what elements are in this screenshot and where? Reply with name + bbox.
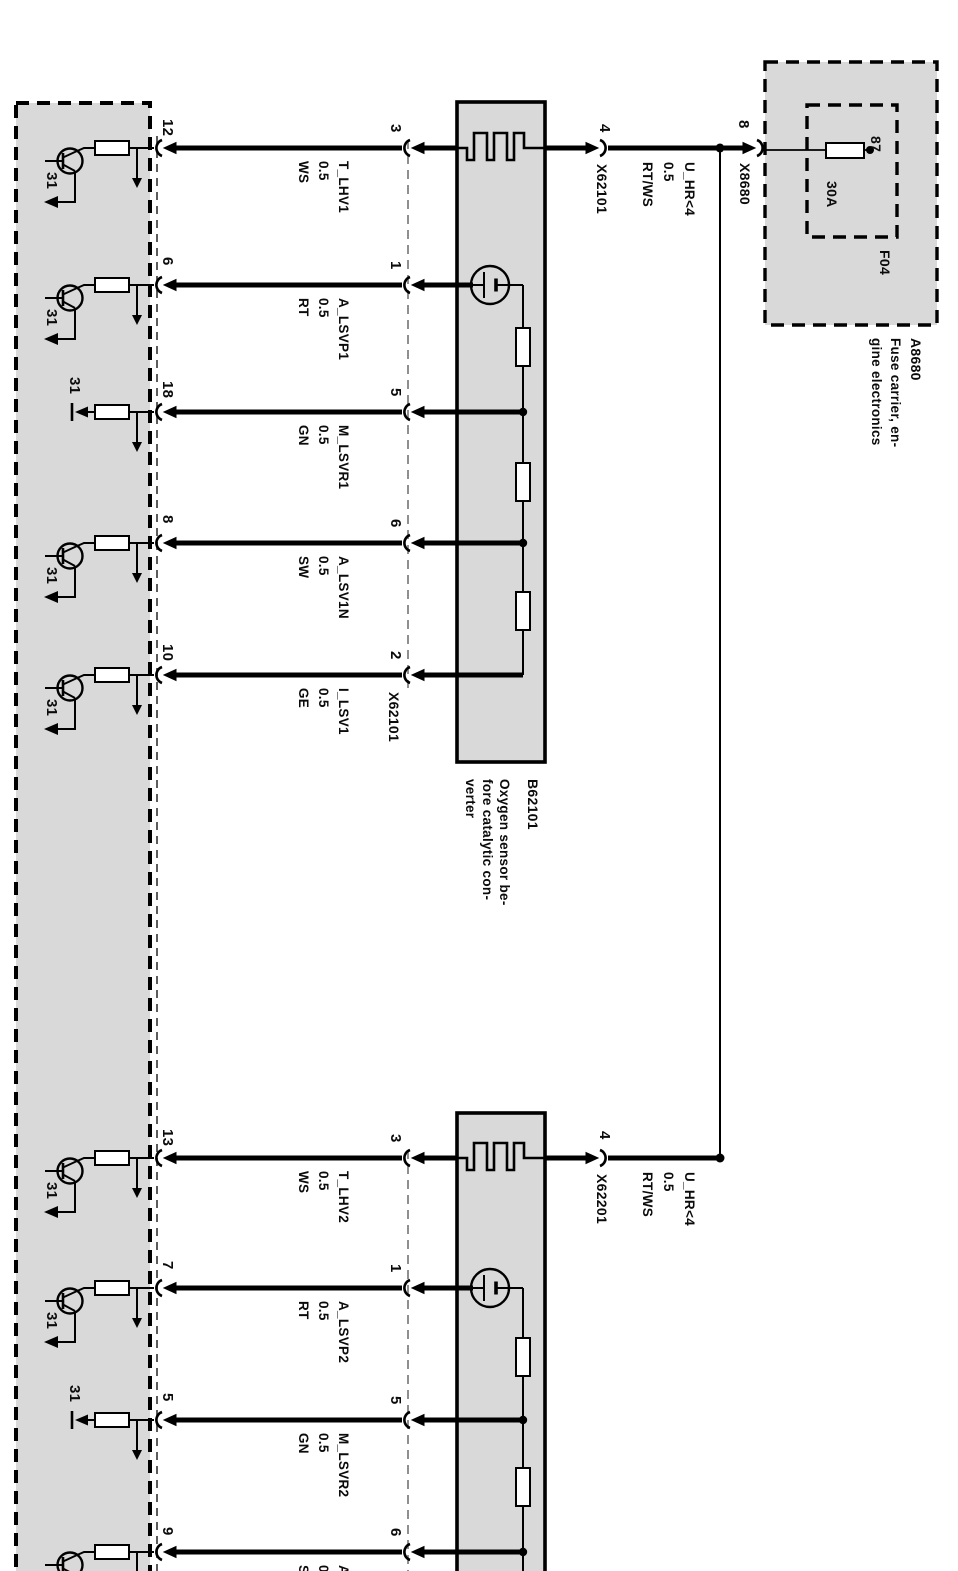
ecu-box	[16, 103, 157, 1571]
sensor1-id-label: B62101	[525, 779, 541, 830]
terminal-31-label: 31	[43, 309, 60, 326]
fuse-rating-label: 30A	[824, 181, 840, 208]
connector-pin-label: 3	[387, 1134, 404, 1143]
wiring-diagram-page: 12 6 18 8 10 13 7 5 9 3 1 5 6 2 3 1 5 6 …	[0, 0, 958, 1571]
wire-label: T_LHV10.5WS	[293, 161, 353, 261]
wire-label: A_LSVP10.5RT	[293, 298, 353, 398]
fuse-id-label: F04	[877, 250, 893, 275]
fuse-pin-label: 8	[735, 120, 752, 129]
connector-pin-label: 6	[387, 1528, 404, 1537]
terminal-31-label: 31	[43, 1182, 60, 1199]
connector-pin-label: 5	[387, 1396, 404, 1405]
supply-connector-label: X62101	[594, 164, 610, 214]
wire-label: A_LSV2N0.5SW	[293, 1565, 353, 1571]
terminal-31-label: 31	[66, 377, 83, 394]
supply-pin-label: 4	[596, 1131, 613, 1140]
fuse-carrier-box	[762, 62, 937, 325]
supply-wire-label: U_HR<40.5RT/WS	[637, 1172, 700, 1282]
connector-pin-label: 2	[387, 651, 404, 660]
terminal-31-label: 31	[43, 567, 60, 584]
fuse-carrier-id-label: A8680	[908, 338, 924, 381]
ecu-pin-label: 18	[159, 381, 176, 398]
ecu-pin-label: 12	[159, 119, 176, 136]
ecu-pin-label: 13	[159, 1129, 176, 1146]
connector-pin-label: 6	[387, 519, 404, 528]
wire-label: T_LHV20.5WS	[293, 1171, 353, 1271]
fuse-carrier-desc: Fuse carrier, en-gine electronics	[867, 338, 905, 473]
ecu-pin-label: 10	[159, 644, 176, 661]
connector-pin-label: 3	[387, 124, 404, 133]
connector-pin-label: 1	[387, 1264, 404, 1273]
wire-label: M_LSVR20.5GN	[293, 1433, 353, 1533]
ecu-pin-label: 5	[159, 1393, 176, 1402]
terminal-31-label: 31	[43, 1312, 60, 1329]
connector-pin-label: 5	[387, 388, 404, 397]
sensor1-box	[457, 102, 545, 762]
wire-label: A_LSV1N0.5SW	[293, 556, 353, 656]
wire-label: I_LSV10.5GE	[293, 688, 353, 788]
terminal-31-label: 31	[43, 172, 60, 189]
fuse-terminal-label: 87	[868, 136, 884, 152]
ecu-pin-label: 7	[159, 1261, 176, 1270]
ecu-pin-label: 9	[159, 1527, 176, 1536]
fuse-connector-label: X8680	[737, 163, 753, 205]
supply-wire-label: U_HR<40.5RT/WS	[637, 162, 700, 272]
ecu-pin-label: 6	[159, 257, 176, 266]
supply-connector-label: X62201	[594, 1174, 610, 1224]
connector-x62101-label: X62101	[386, 692, 402, 742]
ecu-pin-label: 8	[159, 515, 176, 524]
wire-label: A_LSVP20.5RT	[293, 1301, 353, 1401]
supply-pin-label: 4	[596, 124, 613, 133]
sensor1-desc: Oxygen sensor be-fore catalytic con-vert…	[461, 779, 513, 929]
connector-pin-label: 1	[387, 261, 404, 270]
sensor2-box	[457, 1113, 545, 1571]
fuse-element-icon	[826, 143, 864, 158]
terminal-31-label: 31	[43, 699, 60, 716]
wire-label: M_LSVR10.5GN	[293, 425, 353, 525]
terminal-31-label: 31	[66, 1385, 83, 1402]
